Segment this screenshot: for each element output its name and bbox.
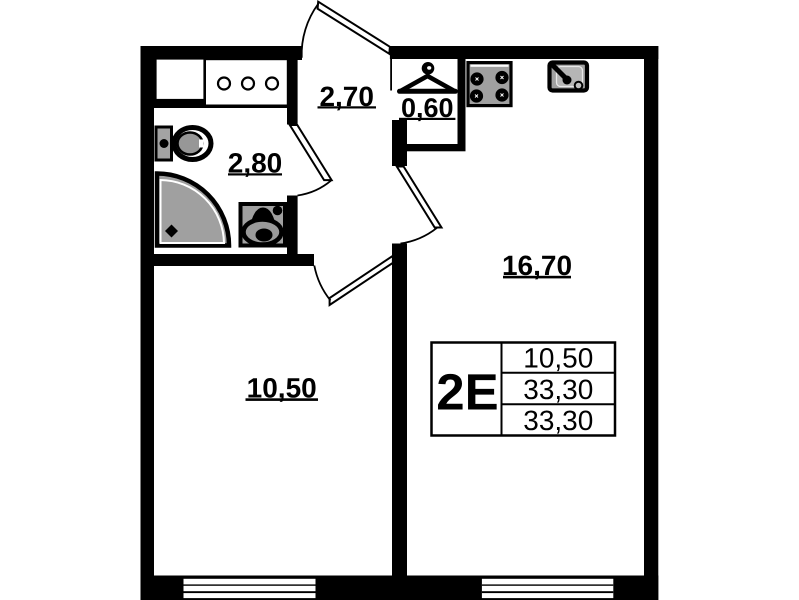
svg-text:33,30: 33,30 [523,405,593,436]
svg-text:2E: 2E [436,364,498,421]
svg-text:10,50: 10,50 [523,343,593,374]
svg-text:33,30: 33,30 [523,374,593,405]
